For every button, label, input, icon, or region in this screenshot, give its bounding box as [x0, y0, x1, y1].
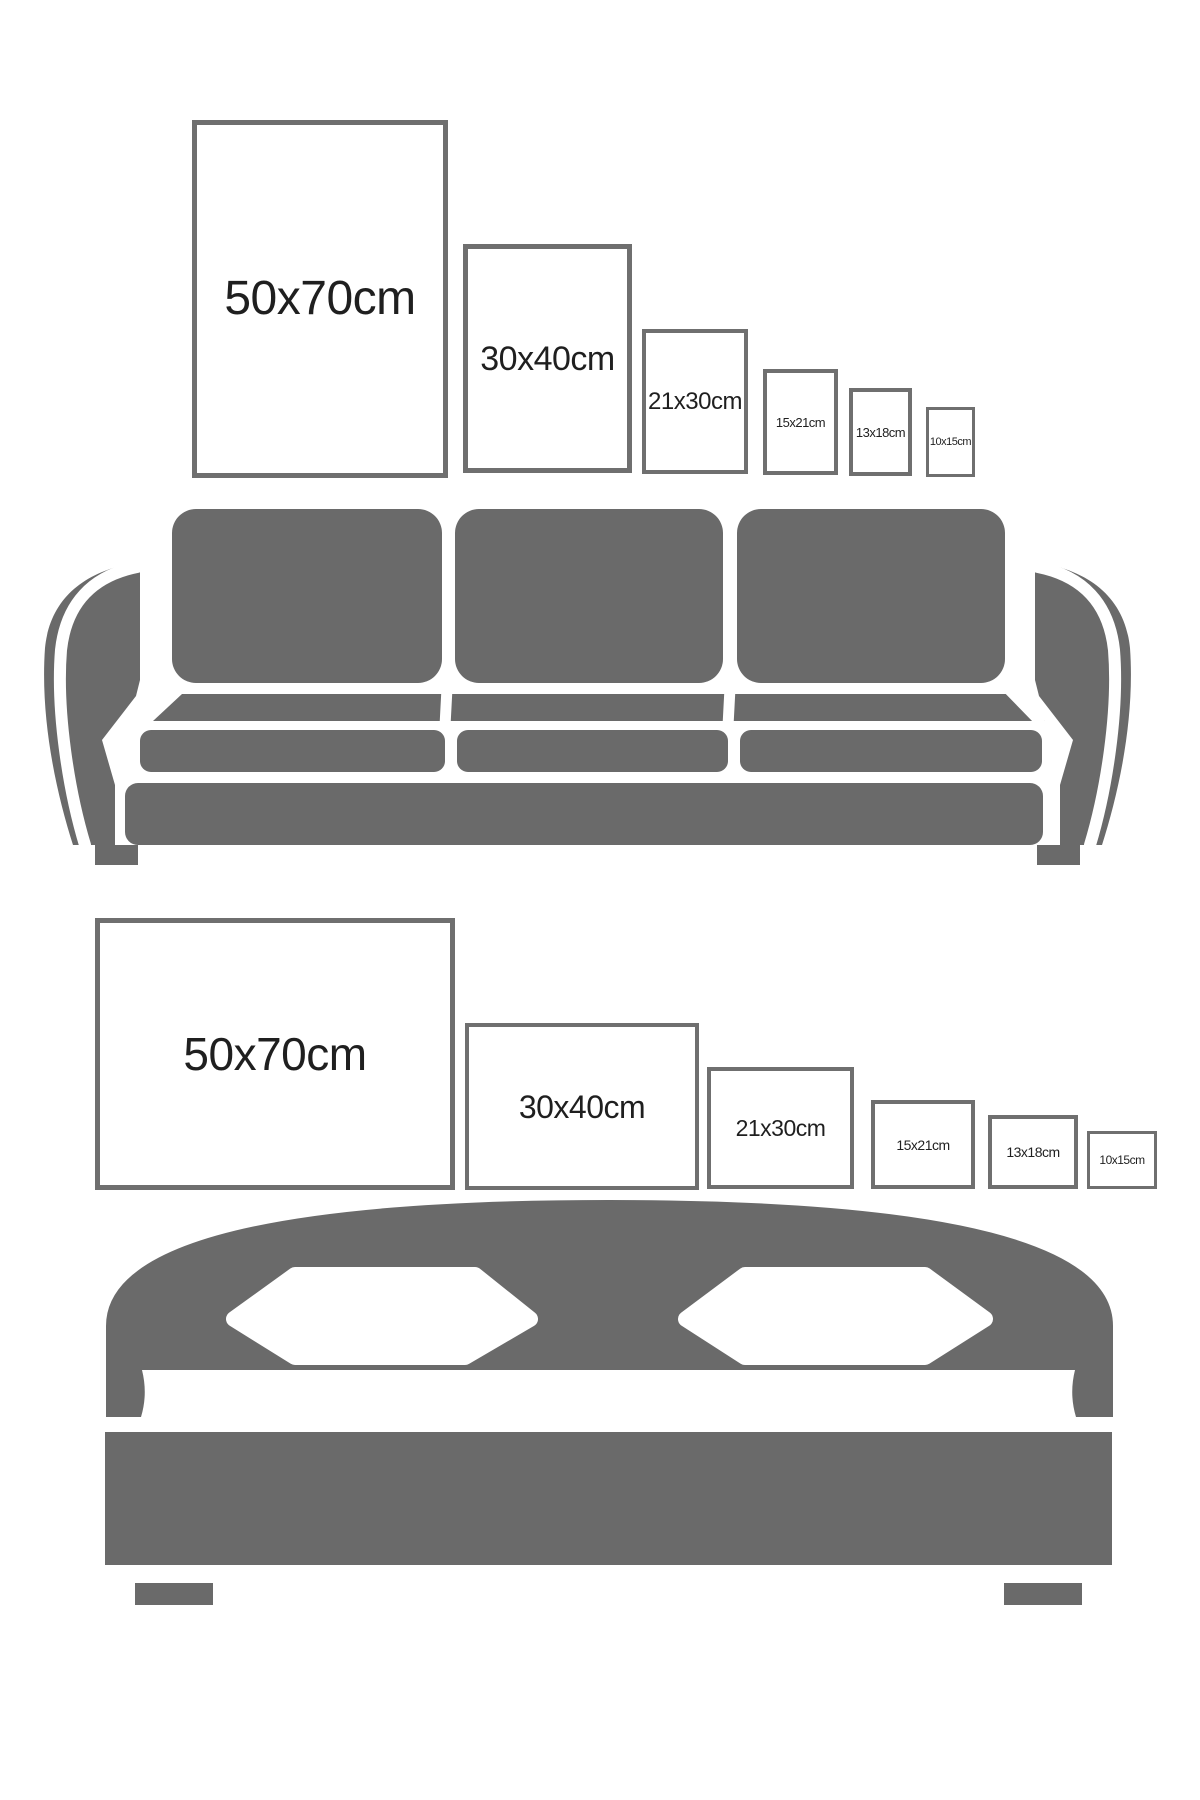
size-label: 21x30cm — [648, 390, 742, 414]
size-frame-21x30-portrait: 21x30cm — [642, 329, 748, 474]
size-label: 10x15cm — [1099, 1154, 1144, 1166]
size-frame-21x30-landscape: 21x30cm — [707, 1067, 854, 1189]
size-frame-13x18-portrait: 13x18cm — [849, 388, 912, 476]
size-frame-10x15-portrait: 10x15cm — [926, 407, 975, 477]
size-frame-10x15-landscape: 10x15cm — [1087, 1131, 1157, 1189]
size-label: 50x70cm — [183, 1031, 366, 1077]
size-frame-50x70-portrait: 50x70cm — [192, 120, 448, 478]
size-label: 15x21cm — [776, 416, 825, 429]
poster-size-guide: 50x70cm 30x40cm 21x30cm 15x21cm 13x18cm … — [0, 0, 1200, 1800]
size-frame-30x40-portrait: 30x40cm — [463, 244, 632, 473]
size-label: 30x40cm — [480, 342, 614, 376]
size-frame-30x40-landscape: 30x40cm — [465, 1023, 699, 1190]
size-frame-13x18-landscape: 13x18cm — [988, 1115, 1078, 1189]
size-frame-50x70-landscape: 50x70cm — [95, 918, 455, 1190]
size-label: 10x15cm — [930, 437, 971, 448]
size-label: 21x30cm — [736, 1117, 826, 1140]
size-label: 13x18cm — [856, 426, 905, 439]
size-label: 15x21cm — [896, 1138, 949, 1152]
sofa-illustration — [40, 500, 1135, 870]
bed-illustration — [105, 1198, 1113, 1610]
size-label: 13x18cm — [1006, 1145, 1059, 1159]
size-label: 50x70cm — [224, 275, 415, 323]
size-frame-15x21-portrait: 15x21cm — [763, 369, 838, 475]
size-label: 30x40cm — [519, 1091, 645, 1123]
size-frame-15x21-landscape: 15x21cm — [871, 1100, 975, 1189]
